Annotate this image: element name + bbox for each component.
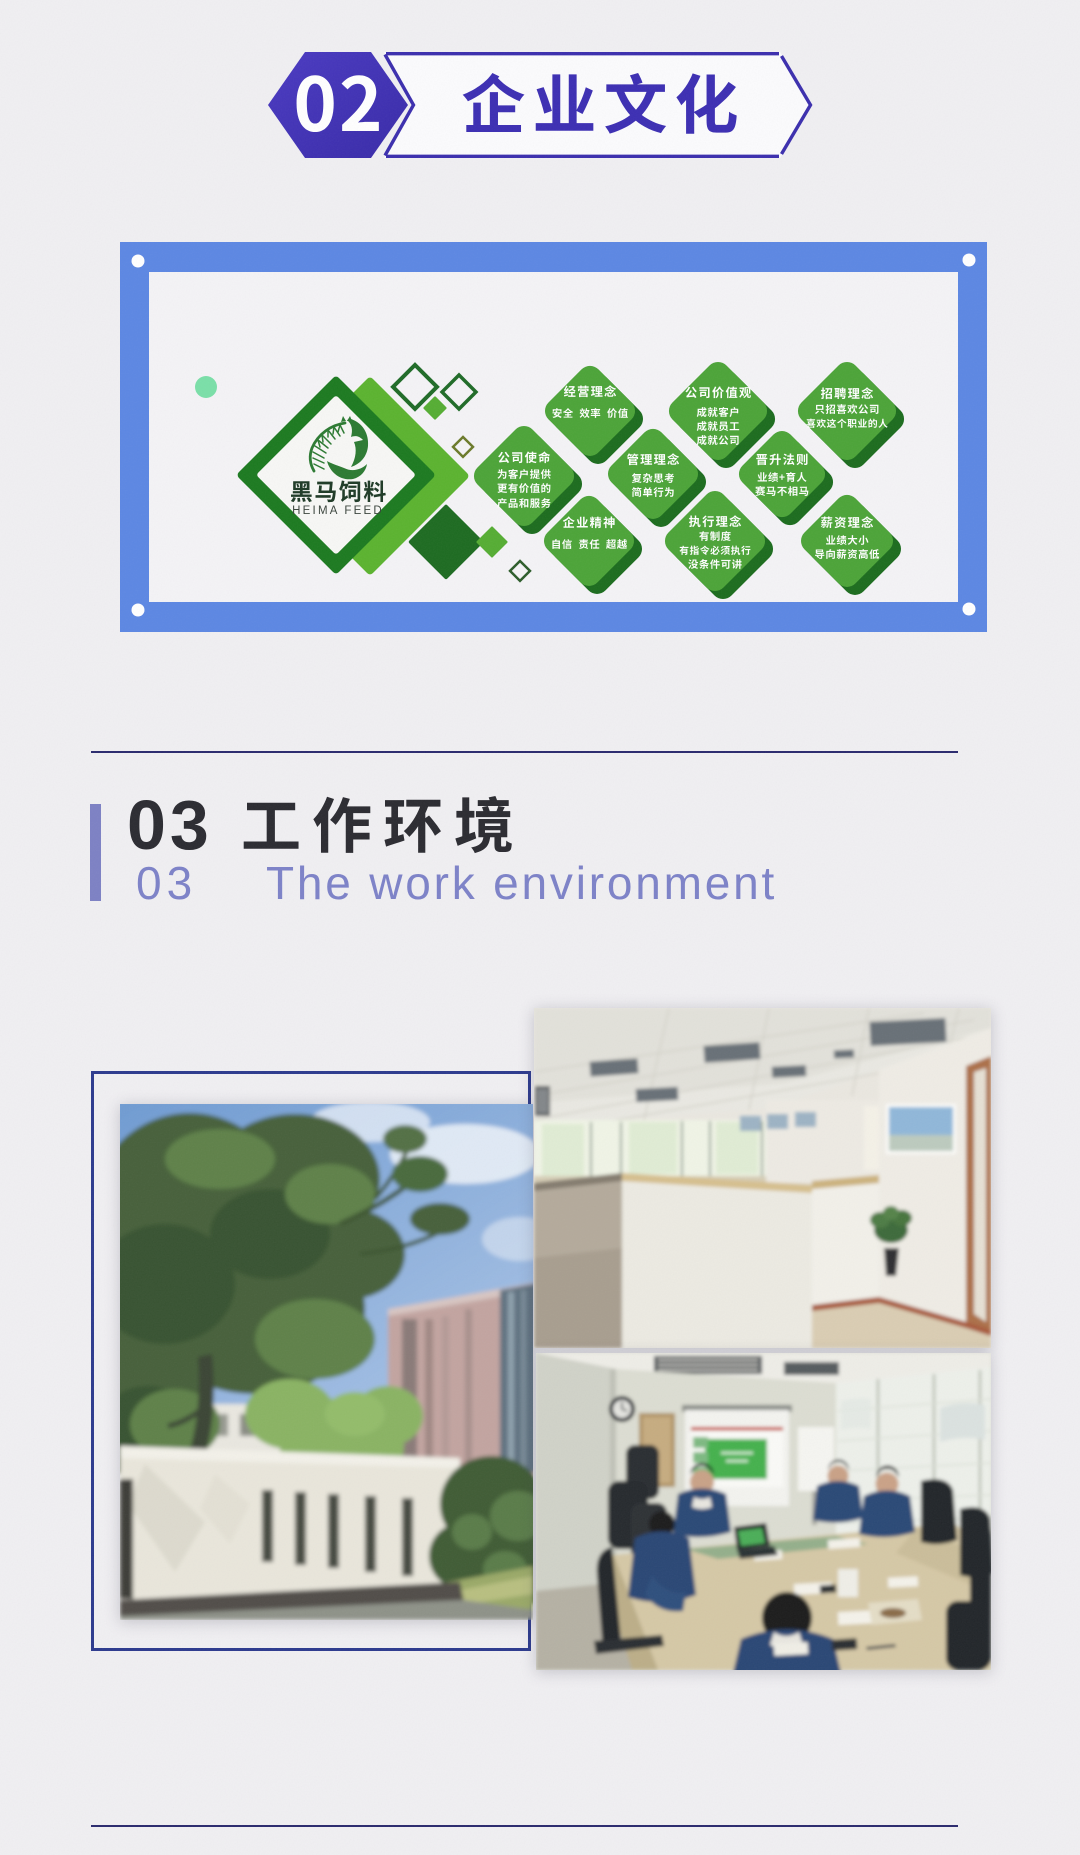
svg-text:03: 03 (136, 857, 197, 909)
svg-text:03: 03 (127, 786, 213, 864)
svg-text:The work environment: The work environment (266, 857, 777, 909)
svg-text:HEIMA FEED: HEIMA FEED (292, 505, 384, 517)
